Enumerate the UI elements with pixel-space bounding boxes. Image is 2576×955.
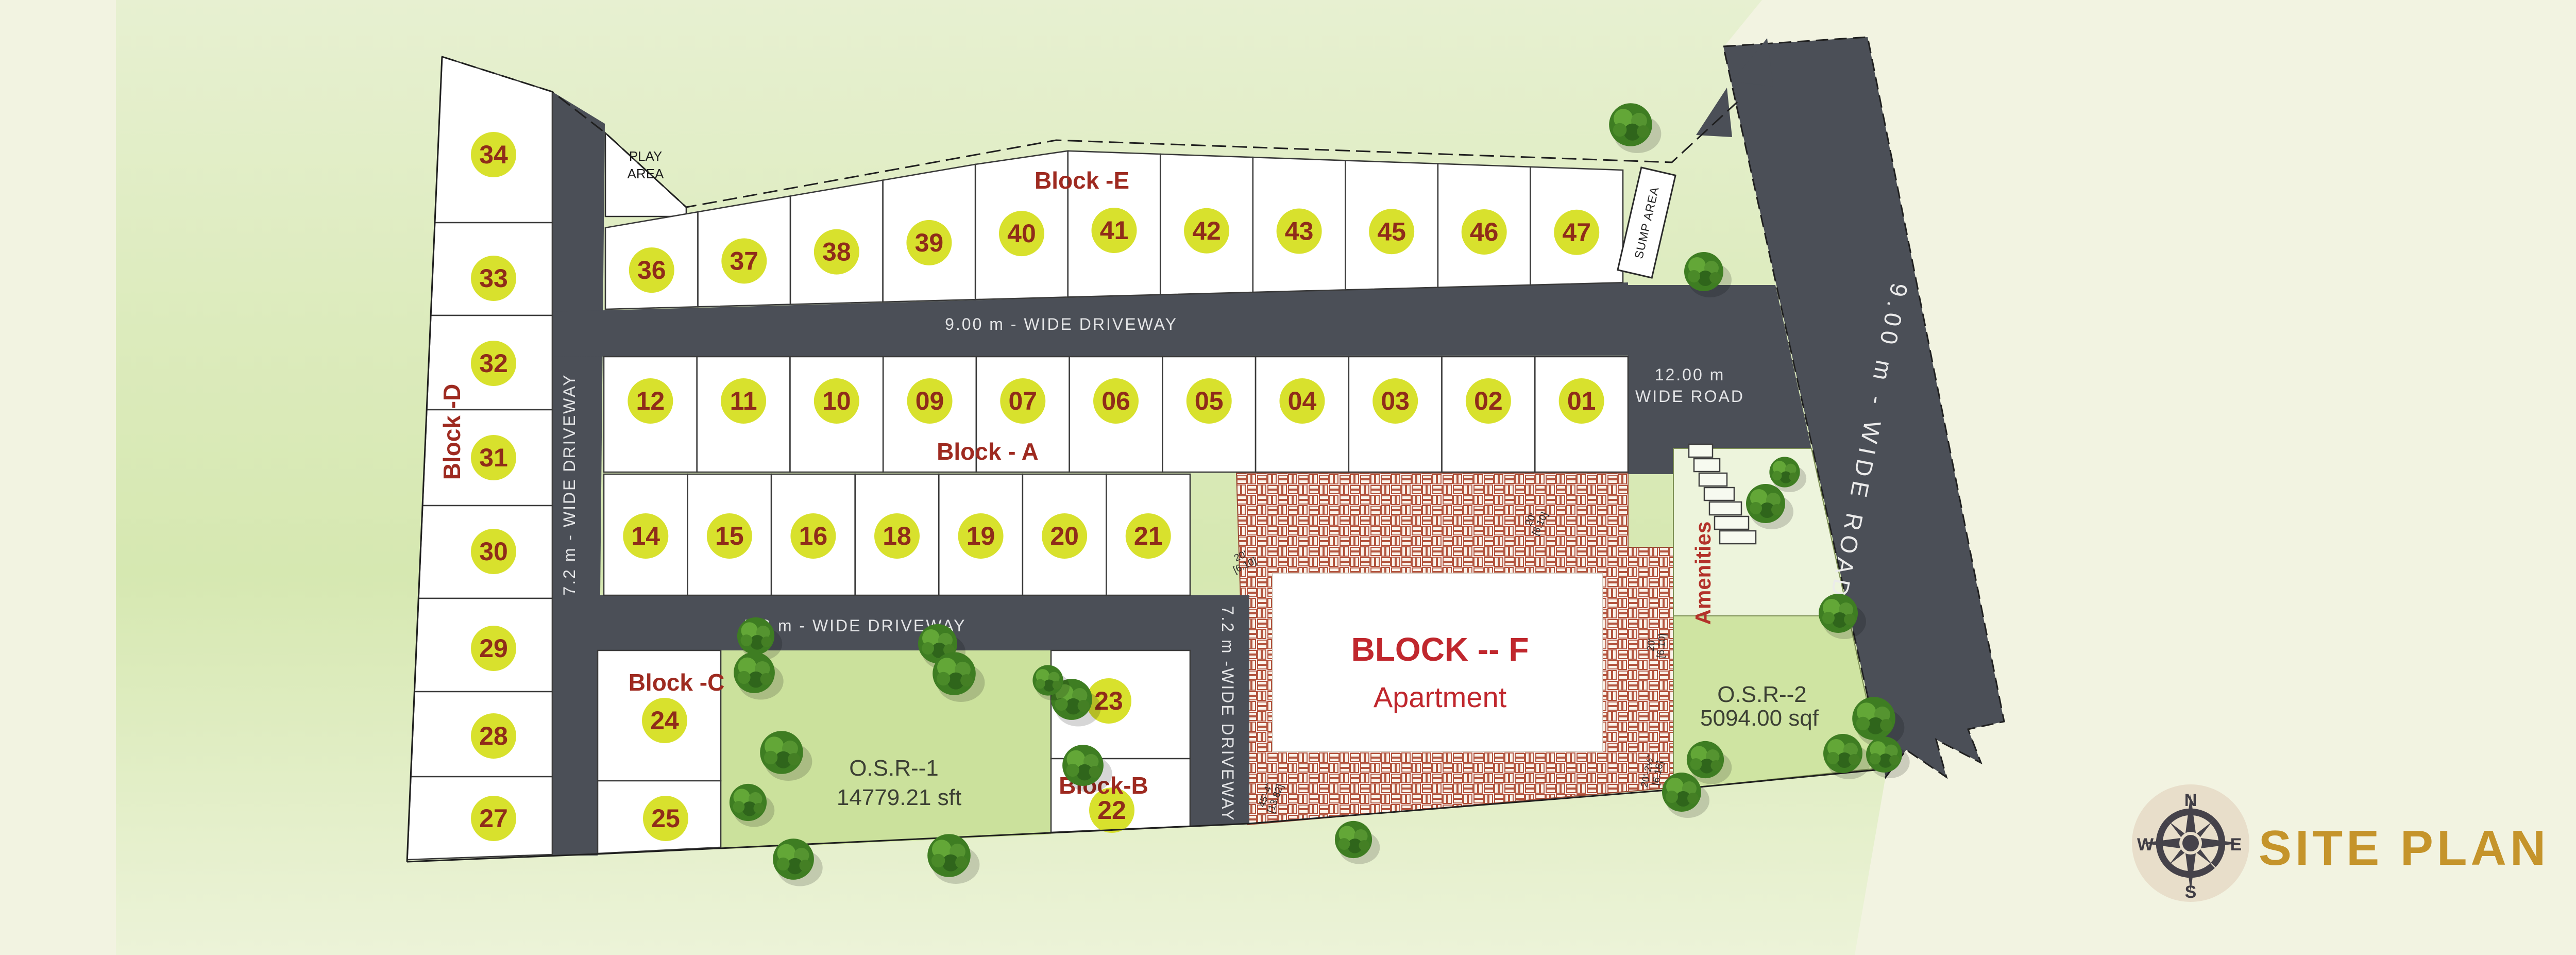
plot-10-number: 10 xyxy=(822,387,851,415)
play-area-label-line2: AREA xyxy=(628,166,664,181)
plot-41-number: 41 xyxy=(1100,216,1129,245)
plot-24-number: 24 xyxy=(650,706,679,735)
plot-07-number: 07 xyxy=(1008,387,1037,415)
plot-21-number: 21 xyxy=(1134,522,1163,550)
plot-05-number: 05 xyxy=(1195,387,1224,415)
block-a-upper-plots: 1211100907060504030201 xyxy=(604,357,1628,472)
plot-34-number: 34 xyxy=(479,140,508,169)
block-c-label: Block -C xyxy=(629,669,725,696)
stair-step xyxy=(1694,459,1720,472)
plot-32-number: 32 xyxy=(479,349,508,378)
east-road-label-line1: 12.00 m xyxy=(1655,365,1725,384)
compass-rose: N E S W xyxy=(2132,784,2249,902)
block-e-label: Block -E xyxy=(1035,167,1129,194)
east-road-label-line2: WIDE ROAD xyxy=(1635,387,1744,406)
plot-04-number: 04 xyxy=(1288,387,1317,415)
plot-31-number: 31 xyxy=(479,443,508,472)
site-plan-canvas: PLAY AREA 3433323130292827 3637383940414… xyxy=(0,0,2576,955)
plot-16-number: 16 xyxy=(799,522,828,550)
plot-29-number: 29 xyxy=(479,634,508,663)
site-plan-page: PLAY AREA 3433323130292827 3637383940414… xyxy=(0,0,2576,955)
plot-02-number: 02 xyxy=(1474,387,1503,415)
plot-43-number: 43 xyxy=(1285,217,1314,246)
stair-step xyxy=(1720,531,1756,544)
plot-19-number: 19 xyxy=(967,522,995,550)
amenities-label: Amenities xyxy=(1691,522,1715,625)
plot-12-number: 12 xyxy=(636,387,665,415)
plot-38-number: 38 xyxy=(822,238,851,266)
block-a-lower-plots: 14151618192021 xyxy=(604,474,1190,595)
compass-south-label: S xyxy=(2185,882,2197,902)
plot-45-number: 45 xyxy=(1377,217,1406,246)
plot-47-number: 47 xyxy=(1562,218,1591,247)
stair-step xyxy=(1709,502,1741,515)
plot-30-number: 30 xyxy=(479,537,508,566)
block-a-label: Block - A xyxy=(937,438,1039,465)
osr1-name: O.S.R--1 xyxy=(849,756,939,781)
stair-step xyxy=(1699,473,1727,486)
page-title: SITE PLAN xyxy=(2259,820,2549,876)
right-driveway-label: 7.2 m -WIDE DRIVEWAY xyxy=(1218,606,1237,822)
plot-36-number: 36 xyxy=(637,256,666,284)
plot-11-number: 11 xyxy=(730,387,757,415)
plot-20-number: 20 xyxy=(1050,522,1079,550)
plot-18-number: 18 xyxy=(883,522,911,550)
plot-46-number: 46 xyxy=(1470,217,1499,246)
stair-step xyxy=(1715,516,1749,529)
play-area-label-line1: PLAY xyxy=(629,148,663,164)
plot-09-number: 09 xyxy=(916,387,944,415)
plot-03-number: 03 xyxy=(1381,387,1410,415)
plot-28-number: 28 xyxy=(479,722,508,750)
block-f-label: BLOCK -- F xyxy=(1351,631,1529,668)
compass-west-label: W xyxy=(2137,835,2154,855)
svg-text:[6.10]: [6.10] xyxy=(1655,633,1668,658)
plot-14-number: 14 xyxy=(631,522,660,550)
plot-06-number: 06 xyxy=(1101,387,1130,415)
block-d-label: Block -D xyxy=(438,384,465,480)
block-f-sublabel: Apartment xyxy=(1374,681,1507,713)
plot-01-number: 01 xyxy=(1567,387,1596,415)
plot-15-number: 15 xyxy=(715,522,744,550)
left-driveway-label: 7.2 m - WIDE DRIVEWAY xyxy=(560,373,579,595)
plot-27-number: 27 xyxy=(479,804,508,833)
compass-east-label: E xyxy=(2230,835,2242,855)
compass-north-label: N xyxy=(2184,791,2197,810)
osr2-name: O.S.R--2 xyxy=(1717,682,1807,707)
osr2-area-label: 5094.00 sqf xyxy=(1700,706,1819,731)
stair-step xyxy=(1704,488,1734,500)
block-b-plots: 2322 xyxy=(1051,650,1190,833)
osr1-area-label: 14779.21 sft xyxy=(837,785,961,810)
top-driveway-label: 9.00 m - WIDE DRIVEWAY xyxy=(945,315,1178,333)
plot-33-number: 33 xyxy=(479,264,508,293)
plot-25-number: 25 xyxy=(651,804,680,833)
plot-37-number: 37 xyxy=(730,246,759,275)
plot-42-number: 42 xyxy=(1192,216,1221,245)
plot-40-number: 40 xyxy=(1007,219,1036,248)
plot-22-number: 22 xyxy=(1097,796,1126,825)
stair-step xyxy=(1689,444,1713,457)
plot-39-number: 39 xyxy=(915,228,944,257)
